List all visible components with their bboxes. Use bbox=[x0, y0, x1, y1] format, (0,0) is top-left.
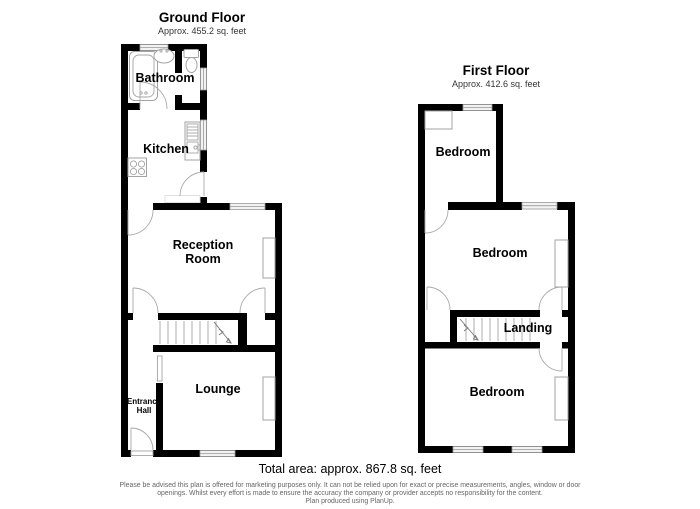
sink-icon bbox=[154, 49, 174, 63]
first-interior-walls bbox=[425, 202, 575, 349]
first-floor-area: Approx. 412.6 sq. feet bbox=[452, 79, 540, 89]
kitchen-threshold bbox=[165, 196, 200, 203]
room-label-lounge: Lounge bbox=[195, 382, 240, 396]
disclaimer-line-2: openings. Whilst every effort is made to… bbox=[0, 490, 700, 498]
window bbox=[463, 105, 492, 111]
furniture-rect bbox=[555, 377, 568, 420]
room-label-bathroom: Bathroom bbox=[135, 71, 194, 85]
furniture-rect bbox=[555, 240, 568, 287]
door-arc bbox=[240, 288, 265, 313]
door-arc bbox=[128, 210, 153, 235]
floor-plan-page: Ground Floor Approx. 455.2 sq. feet Firs… bbox=[0, 0, 700, 509]
window bbox=[453, 447, 483, 453]
room-label-bedroom-1: Bedroom bbox=[436, 145, 491, 159]
door-arc bbox=[131, 428, 153, 456]
window bbox=[522, 203, 557, 210]
stairs bbox=[160, 321, 231, 344]
ground-floor-title: Ground Floor bbox=[159, 10, 245, 25]
ground-floor-area: Approx. 455.2 sq. feet bbox=[158, 26, 246, 36]
room-label-entrance-hall: Entrance Hall bbox=[127, 398, 161, 416]
window bbox=[200, 451, 235, 457]
furniture-rect bbox=[263, 238, 275, 278]
first-floor-plan bbox=[400, 96, 590, 462]
plan-credit: Plan produced using PlanUp. bbox=[0, 498, 700, 506]
furniture-rect bbox=[263, 377, 275, 420]
window bbox=[201, 68, 207, 90]
door-arc bbox=[427, 287, 450, 310]
room-label-bedroom-3: Bedroom bbox=[470, 385, 525, 399]
room-label-kitchen: Kitchen bbox=[143, 142, 189, 156]
furniture-rect bbox=[425, 111, 452, 129]
first-floor-title: First Floor bbox=[463, 63, 530, 78]
hob-icon bbox=[128, 158, 147, 177]
hall-lounge-door bbox=[158, 356, 163, 381]
kitchen-door-opening bbox=[200, 172, 207, 197]
door-arc bbox=[133, 288, 158, 313]
total-area-text: Total area: approx. 867.8 sq. feet bbox=[0, 462, 700, 476]
door-arc bbox=[425, 210, 448, 233]
room-label-bedroom-2: Bedroom bbox=[473, 246, 528, 260]
door-arc bbox=[539, 287, 562, 310]
disclaimer-line-1: Please be advised this plan is offered f… bbox=[0, 482, 700, 490]
room-label-landing: Landing bbox=[504, 321, 553, 335]
toilet-icon bbox=[184, 50, 199, 73]
door-arc bbox=[539, 348, 562, 371]
window bbox=[201, 120, 207, 150]
window bbox=[512, 447, 542, 453]
window bbox=[230, 204, 265, 210]
room-label-reception-room: Reception Room bbox=[173, 238, 233, 266]
